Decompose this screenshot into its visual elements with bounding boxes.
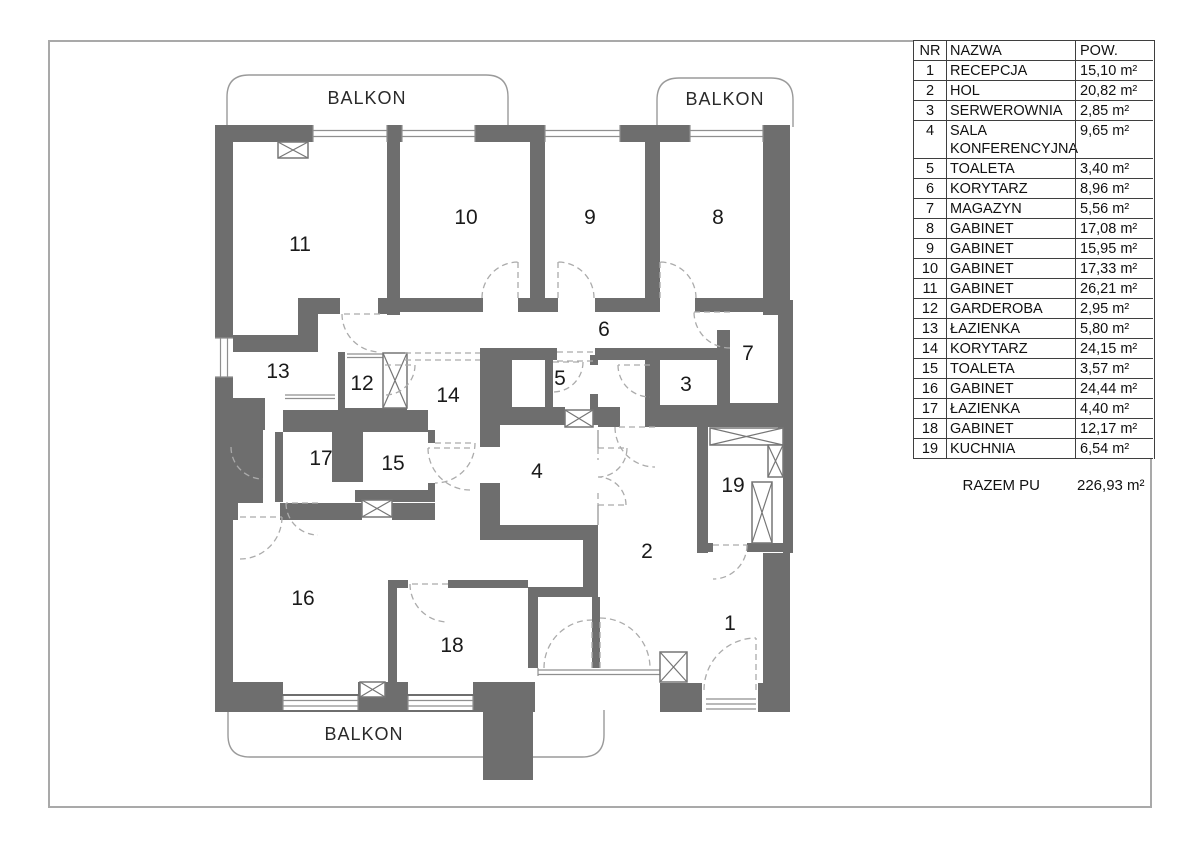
balcony-door-sill bbox=[538, 668, 660, 676]
total-area-value: 226,93 m² bbox=[1077, 477, 1145, 494]
room-area: 3,40 m² bbox=[1075, 159, 1153, 179]
kitchen-counter bbox=[752, 482, 772, 543]
room-nr: 19 bbox=[913, 439, 946, 459]
room-label-16: 16 bbox=[291, 587, 314, 610]
room-label-2: 2 bbox=[641, 540, 653, 563]
room-label-11: 11 bbox=[289, 233, 311, 256]
balcony-door-left bbox=[544, 620, 592, 668]
window bbox=[545, 125, 620, 142]
room-nr: 3 bbox=[913, 101, 946, 121]
room-area: 4,40 m² bbox=[1075, 399, 1153, 419]
room-table: NR NAZWA POW. 1RECEPCJA15,10 m² 2HOL20,8… bbox=[913, 40, 1155, 459]
room-label-5: 5 bbox=[554, 367, 566, 390]
room-nr: 5 bbox=[913, 159, 946, 179]
room-area: 15,95 m² bbox=[1075, 239, 1153, 259]
room-label-1: 1 bbox=[724, 612, 736, 635]
room-area: 24,44 m² bbox=[1075, 379, 1153, 399]
balcony-bottom-outline bbox=[228, 710, 604, 757]
room-nr: 13 bbox=[913, 319, 946, 339]
room-label-13: 13 bbox=[266, 360, 289, 383]
shaft bbox=[360, 682, 385, 697]
door-room18 bbox=[410, 584, 448, 622]
room-name: GABINET bbox=[946, 259, 1075, 279]
room-name: ŁAZIENKA bbox=[946, 319, 1075, 339]
room-nr: 14 bbox=[913, 339, 946, 359]
balcony-label-bottom: BALKON bbox=[324, 724, 403, 744]
room-area: 26,21 m² bbox=[1075, 279, 1153, 299]
shaft bbox=[362, 500, 392, 517]
room-nr: 1 bbox=[913, 61, 946, 81]
room-label-7: 7 bbox=[742, 342, 754, 365]
room-name: ŁAZIENKA bbox=[946, 399, 1075, 419]
room-nr: 12 bbox=[913, 299, 946, 319]
room-area: 9,65 m² bbox=[1075, 121, 1153, 159]
window bbox=[283, 696, 358, 710]
entrance-steps bbox=[706, 699, 756, 709]
room-name: GABINET bbox=[946, 219, 1075, 239]
room-nr: 11 bbox=[913, 279, 946, 299]
double-door-hall bbox=[598, 448, 627, 505]
shaft bbox=[565, 410, 593, 427]
room-nr: 4 bbox=[913, 121, 946, 159]
room-label-12: 12 bbox=[350, 372, 373, 395]
room-label-6: 6 bbox=[598, 318, 610, 341]
room-label-14: 14 bbox=[436, 384, 460, 407]
room-label-9: 9 bbox=[584, 206, 596, 229]
interior-window bbox=[285, 393, 335, 400]
room-label-18: 18 bbox=[440, 634, 463, 657]
room-name: TOALETA bbox=[946, 159, 1075, 179]
room-area: 17,33 m² bbox=[1075, 259, 1153, 279]
room-area: 6,54 m² bbox=[1075, 439, 1153, 459]
room-area: 15,10 m² bbox=[1075, 61, 1153, 81]
room-name: KUCHNIA bbox=[946, 439, 1075, 459]
room-nr: 8 bbox=[913, 219, 946, 239]
room-name: GABINET bbox=[946, 379, 1075, 399]
room-area: 3,57 m² bbox=[1075, 359, 1153, 379]
shaft bbox=[383, 353, 407, 408]
room-name: GABINET bbox=[946, 419, 1075, 439]
room-area: 2,85 m² bbox=[1075, 101, 1153, 121]
window bbox=[402, 125, 475, 142]
room-nr: 18 bbox=[913, 419, 946, 439]
room-nr: 10 bbox=[913, 259, 946, 279]
room-label-4: 4 bbox=[531, 460, 543, 483]
balcony-label-top-left: BALKON bbox=[327, 88, 406, 108]
room-nr: 16 bbox=[913, 379, 946, 399]
room-nr: 2 bbox=[913, 81, 946, 101]
col-header-nr: NR bbox=[913, 41, 946, 61]
room-name: KORYTARZ bbox=[946, 179, 1075, 199]
shaft bbox=[278, 142, 308, 158]
room-area: 5,80 m² bbox=[1075, 319, 1153, 339]
door-room9 bbox=[558, 262, 594, 298]
room-name: TOALETA bbox=[946, 359, 1075, 379]
room-area: 5,56 m² bbox=[1075, 199, 1153, 219]
window bbox=[408, 696, 473, 710]
room-label-19: 19 bbox=[721, 474, 744, 497]
room-name: GARDEROBA bbox=[946, 299, 1075, 319]
room-label-10: 10 bbox=[454, 206, 477, 229]
walls-layer bbox=[215, 125, 793, 780]
room-area: 2,95 m² bbox=[1075, 299, 1153, 319]
room-name: GABINET bbox=[946, 239, 1075, 259]
window bbox=[690, 125, 763, 142]
door-room8 bbox=[660, 262, 696, 298]
room-name: RECEPCJA bbox=[946, 61, 1075, 81]
door-kitchen bbox=[713, 545, 747, 579]
room-label-3: 3 bbox=[680, 373, 692, 396]
room-area: 17,08 m² bbox=[1075, 219, 1153, 239]
room-name: HOL bbox=[946, 81, 1075, 101]
room-nr: 15 bbox=[913, 359, 946, 379]
shaft bbox=[660, 652, 687, 682]
col-header-nazwa: NAZWA bbox=[946, 41, 1075, 61]
balcony-door-right bbox=[600, 618, 650, 668]
window bbox=[215, 338, 233, 377]
window bbox=[313, 125, 387, 142]
door-entrance bbox=[704, 638, 756, 690]
kitchen-counter bbox=[768, 445, 783, 477]
room-name: SALA KONFERENCYJNA bbox=[946, 121, 1075, 159]
room-name: KORYTARZ bbox=[946, 339, 1075, 359]
room-nr: 6 bbox=[913, 179, 946, 199]
stair-block bbox=[483, 695, 533, 780]
balcony-label-top-right: BALKON bbox=[685, 89, 764, 109]
room-area: 12,17 m² bbox=[1075, 419, 1153, 439]
room-area: 8,96 m² bbox=[1075, 179, 1153, 199]
room-label-17: 17 bbox=[309, 447, 332, 470]
room-name: MAGAZYN bbox=[946, 199, 1075, 219]
room-nr: 9 bbox=[913, 239, 946, 259]
room-area: 20,82 m² bbox=[1075, 81, 1153, 101]
col-header-pow: POW. bbox=[1075, 41, 1153, 61]
room-nr: 7 bbox=[913, 199, 946, 219]
room-label-15: 15 bbox=[381, 452, 404, 475]
door-hall2 bbox=[615, 427, 655, 467]
door-room11 bbox=[342, 314, 380, 352]
door-room16 bbox=[240, 517, 282, 559]
room-name: GABINET bbox=[946, 279, 1075, 299]
room-area: 24,15 m² bbox=[1075, 339, 1153, 359]
room-label-8: 8 bbox=[712, 206, 724, 229]
room-name: SERWEROWNIA bbox=[946, 101, 1075, 121]
door-room15 bbox=[435, 443, 475, 483]
total-area-label: RAZEM PU bbox=[913, 477, 1040, 494]
room-nr: 17 bbox=[913, 399, 946, 419]
door-room10 bbox=[482, 262, 518, 298]
kitchen-counter bbox=[710, 428, 783, 445]
